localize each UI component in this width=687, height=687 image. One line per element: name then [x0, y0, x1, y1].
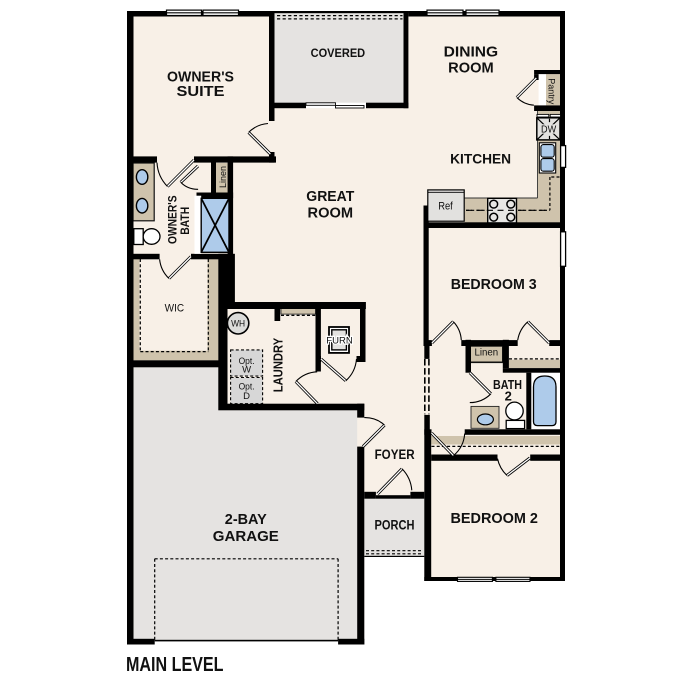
svg-text:BEDROOM 3: BEDROOM 3	[451, 276, 537, 293]
svg-text:2: 2	[505, 389, 512, 404]
svg-text:Linen: Linen	[218, 166, 229, 188]
svg-text:Linen: Linen	[474, 347, 498, 358]
svg-text:D: D	[243, 391, 250, 402]
svg-text:W: W	[242, 365, 251, 376]
svg-text:FOYER: FOYER	[375, 447, 415, 462]
svg-text:LAUNDRY: LAUNDRY	[270, 337, 285, 392]
svg-text:ROOM: ROOM	[308, 206, 354, 222]
svg-text:GREAT: GREAT	[306, 189, 354, 205]
svg-text:2-BAY: 2-BAY	[225, 511, 267, 528]
svg-text:Pantry: Pantry	[545, 78, 556, 104]
svg-text:MAIN LEVEL: MAIN LEVEL	[126, 654, 224, 676]
svg-text:Ref: Ref	[438, 200, 453, 212]
svg-text:BATH: BATH	[178, 207, 192, 235]
svg-text:SUITE: SUITE	[177, 83, 225, 100]
svg-text:BEDROOM 2: BEDROOM 2	[450, 510, 538, 527]
svg-text:PORCH: PORCH	[375, 518, 415, 533]
svg-text:COVERED: COVERED	[311, 46, 366, 60]
svg-text:FURN: FURN	[326, 335, 353, 346]
svg-text:DW: DW	[541, 124, 557, 135]
svg-text:KITCHEN: KITCHEN	[450, 152, 511, 167]
svg-text:ROOM: ROOM	[448, 60, 494, 77]
svg-text:WH: WH	[231, 319, 245, 329]
svg-text:WIC: WIC	[165, 303, 185, 315]
svg-text:GARAGE: GARAGE	[213, 528, 279, 545]
svg-text:DINING: DINING	[444, 44, 499, 61]
